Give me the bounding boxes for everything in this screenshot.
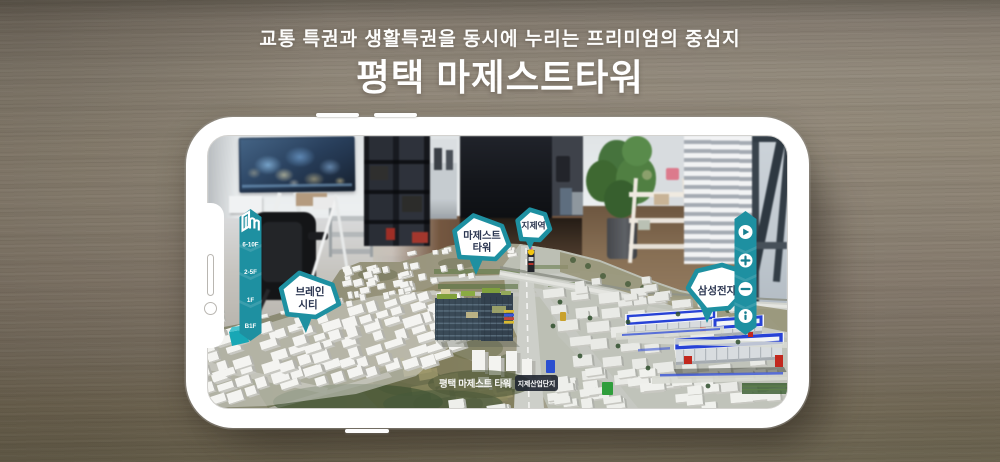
svg-text:삼성전자: 삼성전자: [698, 284, 737, 297]
svg-text:시티: 시티: [298, 298, 317, 311]
svg-text:6-10F: 6-10F: [242, 242, 258, 249]
svg-text:브레인: 브레인: [296, 285, 325, 298]
svg-text:지제역: 지제역: [521, 220, 545, 231]
svg-text:타워: 타워: [473, 241, 492, 254]
svg-text:1F: 1F: [247, 297, 254, 304]
svg-text:마제스트: 마제스트: [463, 229, 501, 242]
svg-text:2-5F: 2-5F: [244, 269, 257, 276]
svg-text:B1F: B1F: [245, 323, 257, 330]
